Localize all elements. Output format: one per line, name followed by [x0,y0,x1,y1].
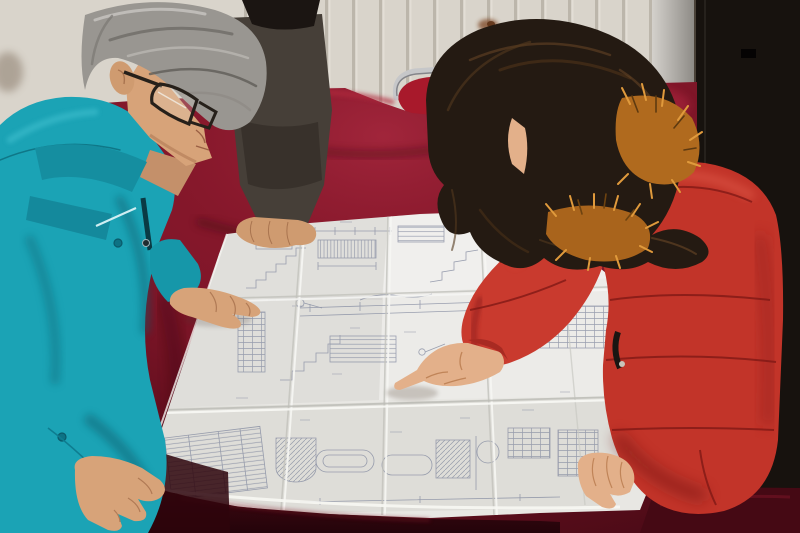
photo-blueprint-review [0,0,800,533]
pointing-hand-shadow [386,386,438,400]
zipper-slider [619,361,625,367]
zipper-pull [143,240,150,247]
door-latch-slot [741,49,756,58]
snap-button-1 [114,239,122,247]
dark-jacket-shadow [240,120,322,189]
photo-canvas [0,0,800,533]
